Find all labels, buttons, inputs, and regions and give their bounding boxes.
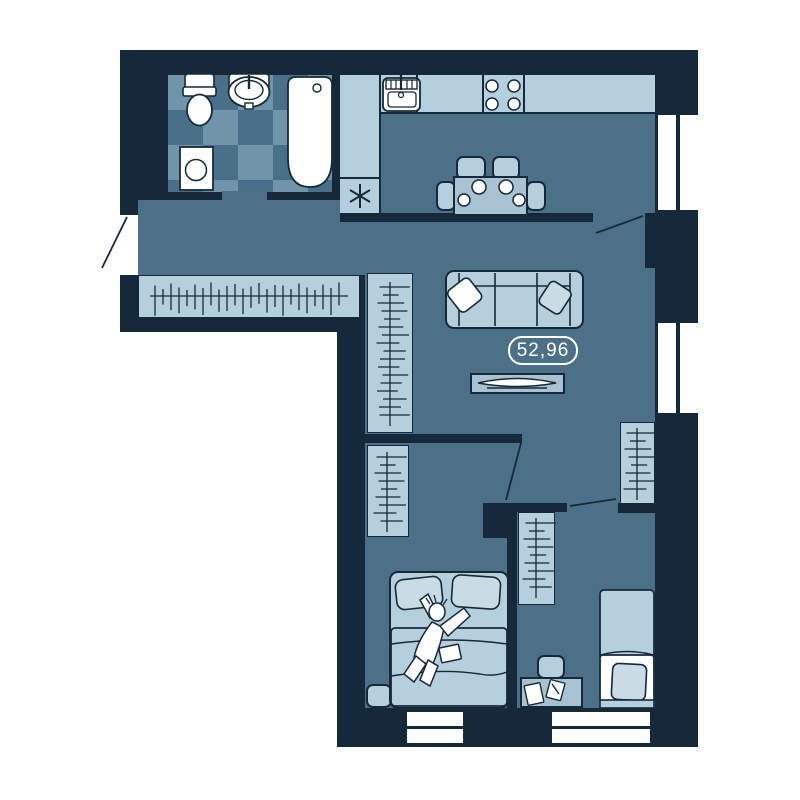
wardrobe-rack-2 bbox=[374, 452, 407, 532]
fixtures-overlay bbox=[0, 0, 800, 800]
desk-papers bbox=[524, 679, 565, 705]
book-icon bbox=[439, 644, 462, 663]
tv-icon bbox=[478, 379, 556, 389]
toilet-icon bbox=[183, 74, 216, 126]
floor-plan-canvas: 52,96 bbox=[0, 0, 800, 800]
bathtub-icon bbox=[288, 77, 332, 187]
bed2-headboard bbox=[600, 700, 654, 708]
wardrobe-rack-4 bbox=[523, 518, 556, 598]
sofa bbox=[446, 271, 583, 328]
dining-plates bbox=[458, 180, 525, 206]
refrigerator-asterisk-icon bbox=[350, 184, 370, 208]
bedroom2-door-leaf bbox=[570, 499, 616, 506]
entrance-door-leaf bbox=[102, 217, 127, 268]
single-bed bbox=[600, 590, 654, 708]
wardrobe-rack-3 bbox=[624, 428, 657, 500]
washing-machine-icon bbox=[180, 147, 213, 190]
closet-rack bbox=[150, 283, 348, 316]
kitchen-sink-icon bbox=[383, 71, 420, 111]
bed1-pillow-right bbox=[451, 574, 501, 609]
wardrobe-rack-1 bbox=[377, 282, 410, 426]
washbasin-icon bbox=[229, 74, 270, 109]
bed2-pillow bbox=[611, 663, 647, 701]
double-bed bbox=[390, 572, 508, 708]
bedroom1-door-leaf bbox=[506, 443, 521, 500]
door-leaves bbox=[102, 216, 643, 506]
stove-burners-icon bbox=[486, 80, 520, 110]
kitchen-door-leaf bbox=[596, 216, 643, 233]
